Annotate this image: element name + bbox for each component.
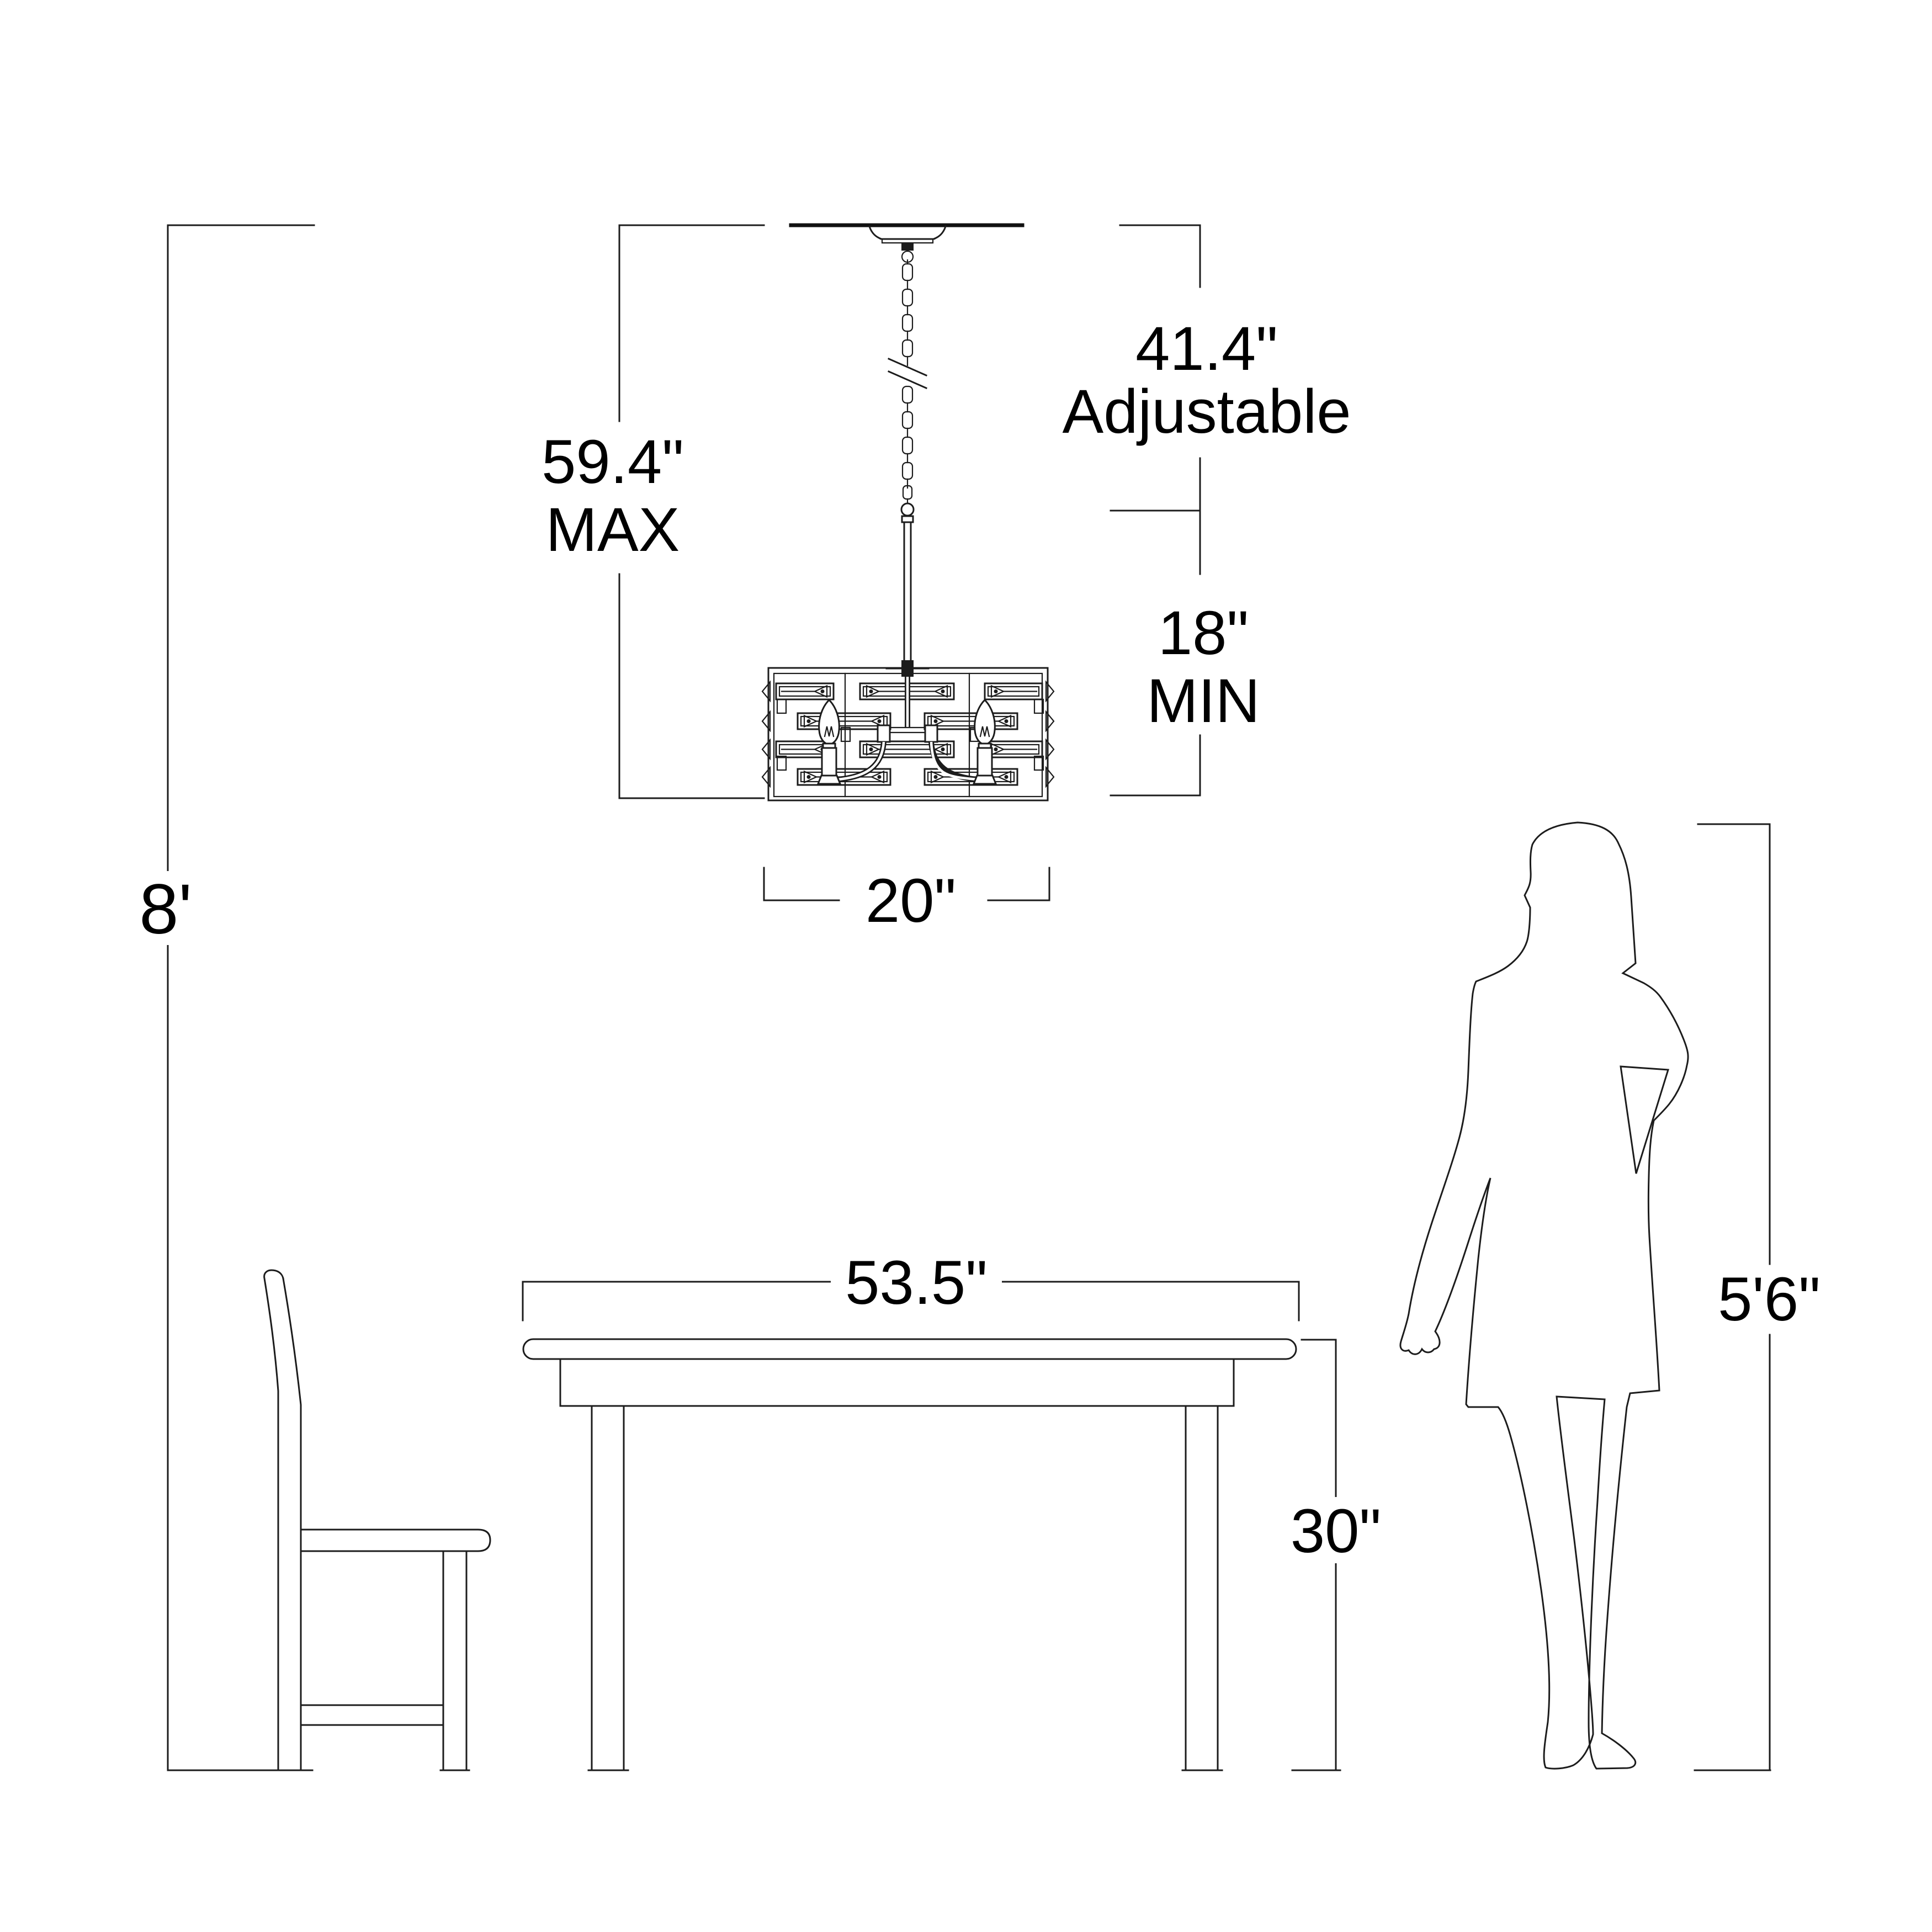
chair-stretcher bbox=[301, 1705, 443, 1725]
canopy bbox=[869, 226, 946, 262]
candle-base bbox=[818, 776, 840, 784]
chain-link bbox=[903, 340, 912, 357]
adjustable-value: 41.4" bbox=[1135, 314, 1278, 383]
crystal-arrow-dot bbox=[821, 689, 825, 693]
down-rod bbox=[902, 516, 913, 660]
crystal-arrow-dot bbox=[807, 775, 811, 779]
crystal-arrow-dot bbox=[869, 689, 873, 693]
crystal-arrow-dot bbox=[1005, 775, 1009, 779]
arm-gap bbox=[1621, 1066, 1668, 1174]
dim-person-height: 5'6" bbox=[1698, 824, 1828, 1770]
crystal-arrow-dot bbox=[934, 775, 938, 779]
person-height-label: 5'6" bbox=[1718, 1265, 1820, 1334]
dim-adjustable: 41.4" Adjustable bbox=[1062, 225, 1351, 574]
crystal-arrow-dot bbox=[941, 747, 945, 751]
chain-link bbox=[903, 463, 912, 479]
chain-link bbox=[903, 386, 912, 403]
chain-link bbox=[903, 264, 912, 280]
fixture-max-qualifier: MAX bbox=[546, 495, 680, 564]
dim-table-width: 53.5" bbox=[523, 1248, 1299, 1320]
canopy-collar bbox=[901, 243, 914, 251]
chair-back bbox=[264, 1270, 283, 1770]
dim-fixture-max: 59.4" MAX bbox=[542, 225, 764, 798]
bulb-icon bbox=[975, 700, 995, 745]
crystal-arrow-dot bbox=[934, 719, 938, 723]
min-qualifier: MIN bbox=[1147, 666, 1260, 735]
chair bbox=[264, 1270, 490, 1770]
table-leg-left bbox=[592, 1406, 624, 1770]
crystal-arrow-dot bbox=[807, 719, 811, 723]
candle-body bbox=[978, 748, 992, 776]
crystal-arrow-dot bbox=[941, 689, 945, 693]
candle-base bbox=[974, 776, 996, 784]
table-top bbox=[523, 1339, 1296, 1359]
table-height-label: 30" bbox=[1291, 1496, 1381, 1565]
person-silhouette bbox=[1400, 822, 1688, 1769]
dim-table-height: 30" bbox=[1285, 1340, 1387, 1770]
crystal-arrow-dot bbox=[869, 747, 873, 751]
bulb-icon bbox=[819, 700, 840, 745]
mounting-height-diagram: 8' 59.4" MAX 41.4" Adjustable 18" MIN 20… bbox=[0, 0, 1932, 1932]
dining-table bbox=[523, 1339, 1296, 1770]
chain-connector bbox=[901, 503, 914, 516]
fixture-body bbox=[762, 660, 1054, 800]
chandelier bbox=[762, 226, 1054, 800]
crystal-arrow-dot bbox=[1005, 719, 1009, 723]
candle-body bbox=[822, 748, 836, 776]
min-value: 18" bbox=[1158, 598, 1249, 667]
dim-ceiling-height: 8' bbox=[134, 225, 314, 1770]
chain-link bbox=[903, 412, 912, 428]
crystal-arrow-dot bbox=[994, 689, 998, 693]
crystal-connector bbox=[777, 756, 786, 770]
ceiling-height-label: 8' bbox=[139, 870, 192, 949]
dim-fixture-width: 20" bbox=[764, 866, 1049, 935]
table-leg-right bbox=[1186, 1406, 1218, 1770]
table-apron bbox=[560, 1359, 1234, 1406]
crystal-connector bbox=[777, 699, 786, 713]
fixture-max-value: 59.4" bbox=[542, 427, 684, 496]
chain-link bbox=[903, 289, 912, 306]
chain-link bbox=[903, 437, 912, 454]
diagram-canvas: 8' 59.4" MAX 41.4" Adjustable 18" MIN 20… bbox=[0, 0, 1932, 1932]
chair-seat bbox=[301, 1530, 490, 1551]
dim-min: 18" MIN bbox=[1111, 598, 1260, 795]
fixture-width-label: 20" bbox=[866, 866, 956, 935]
table-width-label: 53.5" bbox=[845, 1248, 988, 1317]
crystal-arrow-dot bbox=[878, 775, 882, 779]
chain-link bbox=[903, 315, 912, 331]
crystal-arrow-dot bbox=[878, 719, 882, 723]
crystal-arrow-dot bbox=[994, 747, 998, 751]
body-collar bbox=[901, 660, 914, 677]
adjustable-qualifier: Adjustable bbox=[1062, 377, 1351, 446]
